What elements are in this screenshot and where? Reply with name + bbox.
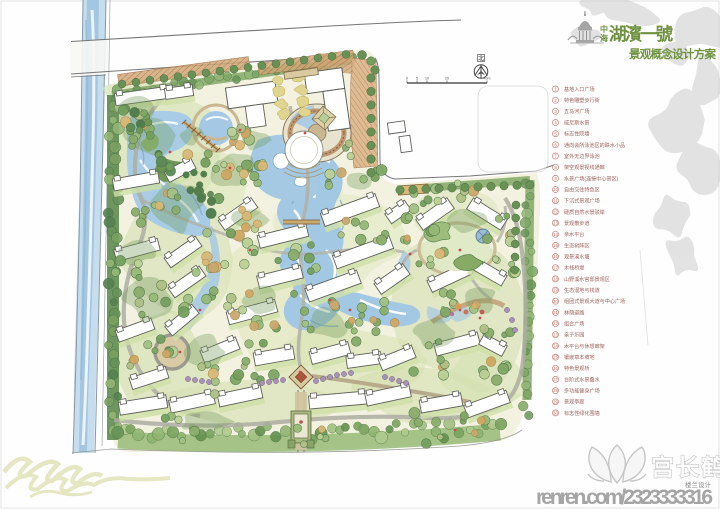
svg-text:30: 30 — [553, 411, 558, 416]
svg-text:中: 中 — [600, 24, 608, 34]
svg-text:林荫道路: 林荫道路 — [564, 309, 584, 316]
svg-text:生态树阵区: 生态树阵区 — [564, 242, 589, 249]
svg-text:海: 海 — [600, 33, 608, 43]
svg-text:renren.com/2323333316: renren.com/2323333316 — [536, 486, 713, 509]
svg-text:26: 26 — [553, 366, 558, 371]
svg-text:五马河广场: 五马河广场 — [564, 108, 589, 115]
svg-text:山野溪水官邸景观区: 山野溪水官邸景观区 — [564, 276, 610, 283]
svg-text:亲子乐园: 亲子乐园 — [564, 332, 584, 339]
svg-text:宫长鹤: 宫长鹤 — [651, 454, 720, 480]
svg-text:通向会所泳池区的跌水小品: 通向会所泳池区的跌水小品 — [564, 142, 625, 149]
svg-text:下沉式景观广场: 下沉式景观广场 — [564, 198, 600, 205]
svg-text:29: 29 — [553, 399, 558, 404]
svg-text:10: 10 — [425, 77, 429, 81]
svg-text:台阶式水景叠水: 台阶式水景叠水 — [564, 376, 600, 383]
svg-text:硬质自然水景驳岸: 硬质自然水景驳岸 — [564, 209, 605, 216]
svg-text:19: 19 — [553, 288, 558, 293]
svg-text:观景溪水塘: 观景溪水塘 — [564, 253, 589, 260]
svg-text:18: 18 — [553, 277, 558, 282]
svg-text:4: 4 — [554, 120, 557, 125]
svg-text:自由交往特色区: 自由交往特色区 — [564, 186, 600, 193]
svg-text:0: 0 — [406, 77, 408, 81]
svg-text:水景广场(连接中心景区): 水景广场(连接中心景区) — [564, 175, 619, 182]
svg-text:24: 24 — [553, 344, 558, 349]
svg-text:21: 21 — [553, 310, 558, 315]
svg-text:生态湿地与栈道: 生态湿地与栈道 — [564, 287, 600, 294]
svg-text:16: 16 — [553, 254, 558, 259]
svg-text:标志性绿化围墙: 标志性绿化围墙 — [564, 410, 600, 417]
svg-text:10: 10 — [553, 187, 558, 192]
svg-text:架空观景视线通廊: 架空观景视线通廊 — [564, 164, 605, 171]
svg-text:景观散步道: 景观散步道 — [564, 220, 589, 227]
svg-text:多功能健身广场: 多功能健身广场 — [564, 388, 600, 395]
svg-text:5: 5 — [416, 77, 418, 81]
svg-text:25: 25 — [553, 355, 558, 360]
svg-text:特色雕塑步行街: 特色雕塑步行街 — [564, 97, 600, 104]
svg-text:20: 20 — [553, 299, 558, 304]
svg-text:景观亭廊: 景观亭廊 — [564, 399, 584, 406]
svg-text:22: 22 — [553, 321, 558, 326]
svg-text:6: 6 — [554, 142, 557, 147]
svg-text:40m: 40m — [484, 77, 491, 81]
svg-text:2: 2 — [554, 98, 557, 103]
svg-text:威尼斯水景: 威尼斯水景 — [564, 119, 589, 126]
svg-text:15: 15 — [553, 243, 558, 248]
svg-text:湖濱一號: 湖濱一號 — [609, 24, 674, 44]
svg-text:北: 北 — [478, 54, 484, 62]
svg-text:9: 9 — [554, 176, 557, 181]
svg-text:8: 8 — [554, 165, 557, 170]
svg-text:14: 14 — [553, 232, 558, 237]
svg-text:组团式景观大道与中心广场: 组团式景观大道与中心广场 — [564, 298, 625, 305]
svg-text:13: 13 — [553, 221, 558, 226]
svg-text:17: 17 — [553, 265, 558, 270]
svg-text:11: 11 — [553, 198, 558, 203]
svg-text:景观概念设计方案: 景观概念设计方案 — [628, 47, 717, 61]
svg-text:1: 1 — [554, 87, 557, 92]
svg-text:标志性院墙: 标志性院墙 — [564, 131, 589, 138]
svg-text:木平台与休想廊架: 木平台与休想廊架 — [564, 343, 605, 350]
svg-text:27: 27 — [553, 377, 558, 382]
svg-text:组合广场: 组合广场 — [564, 321, 584, 328]
svg-text:室外无边界泳池: 室外无边界泳池 — [564, 153, 600, 160]
svg-text:镶嵌草本坡地: 镶嵌草本坡地 — [564, 354, 595, 361]
svg-text:亲水平台: 亲水平台 — [564, 231, 584, 238]
svg-text:23: 23 — [553, 332, 558, 337]
svg-text:5: 5 — [554, 131, 557, 136]
svg-text:3: 3 — [554, 109, 557, 114]
svg-text:28: 28 — [553, 388, 558, 393]
svg-text:基地入口广场: 基地入口广场 — [564, 86, 595, 93]
svg-text:木栈桥堤: 木栈桥堤 — [564, 265, 584, 272]
svg-text:特色景观桥: 特色景观桥 — [564, 365, 589, 372]
svg-text:20: 20 — [445, 77, 449, 81]
svg-text:7: 7 — [554, 154, 557, 159]
svg-text:12: 12 — [553, 210, 558, 215]
